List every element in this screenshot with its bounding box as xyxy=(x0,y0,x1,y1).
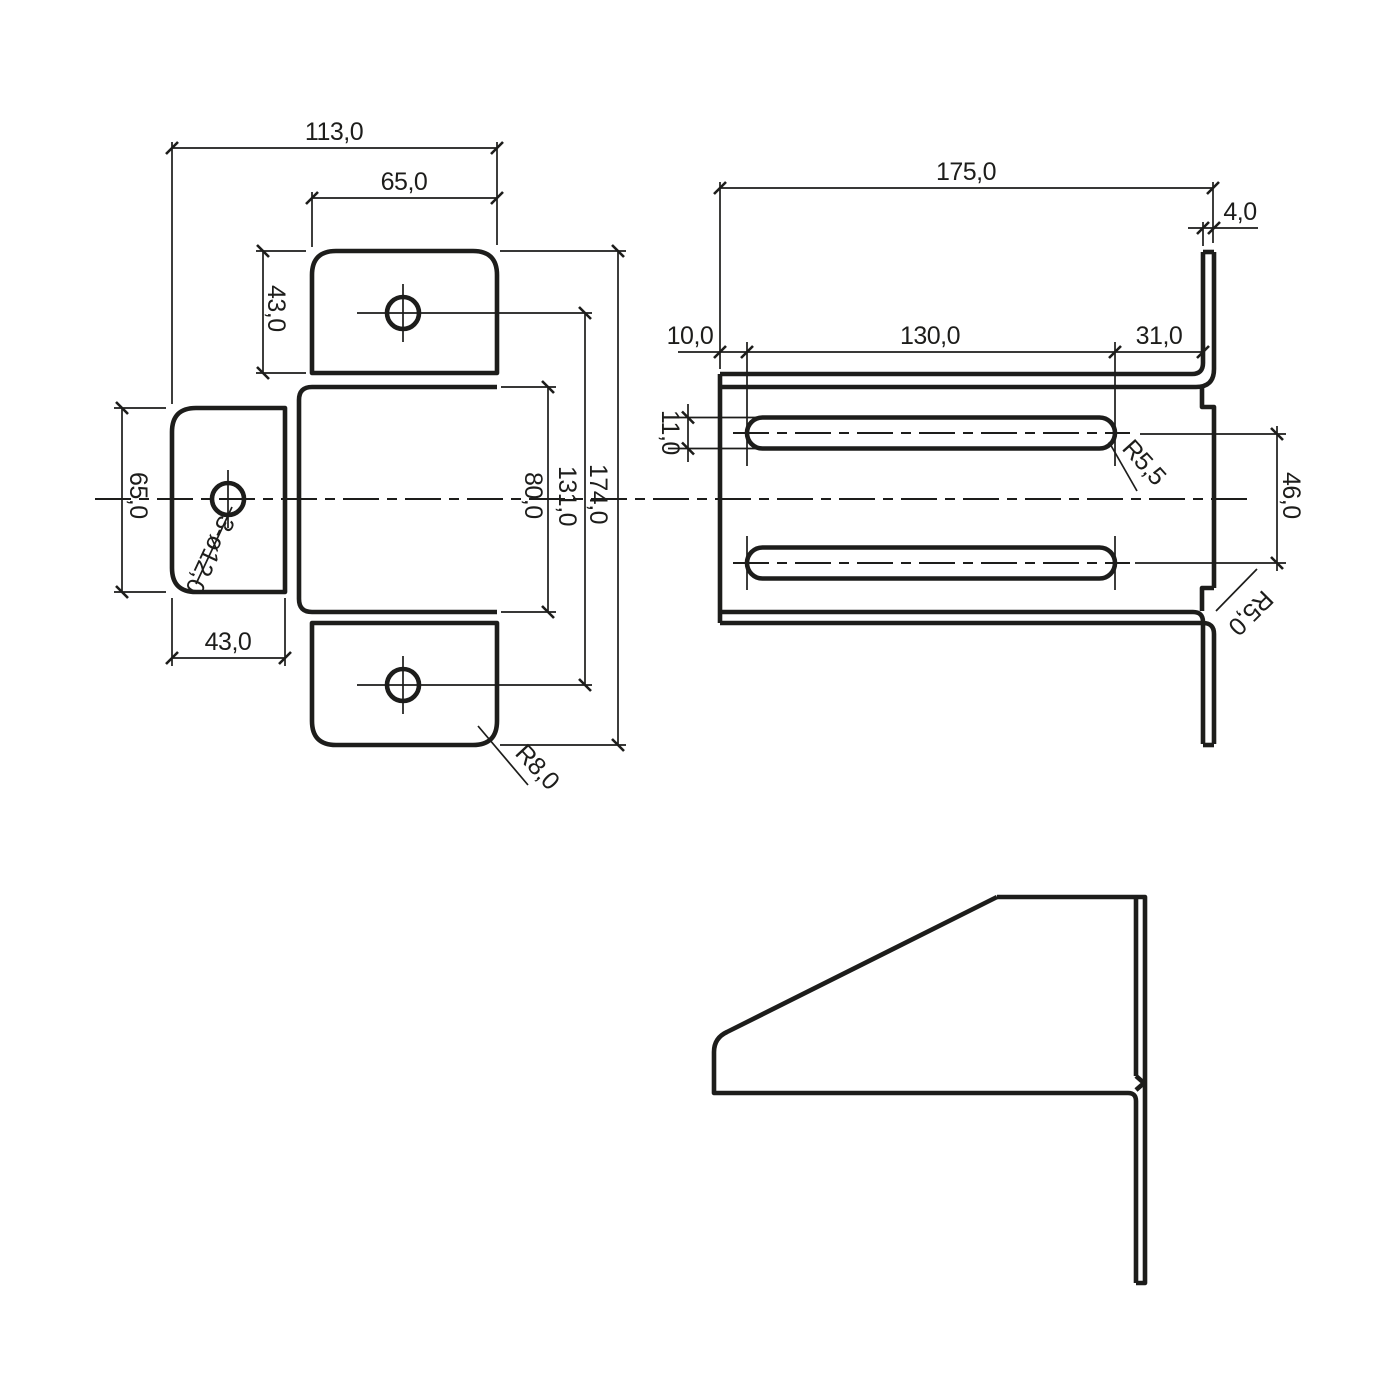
dim-left-tab-height-label: 65,0 xyxy=(124,472,152,519)
profile-view-outline xyxy=(714,897,1145,1283)
dim-overall-width-label: 113,0 xyxy=(305,118,363,146)
dim-slot-start-offset-label: 10,0 xyxy=(667,322,714,350)
dim-slot-end-offset-label: 31,0 xyxy=(1136,322,1183,350)
leader-corner-radius-label: R8,0 xyxy=(510,739,565,795)
drawing-canvas: 113,0 65,0 43,0 65,0 43,0 80,0 131,0 174… xyxy=(0,0,1400,1400)
profile-wedge xyxy=(714,897,1136,1283)
bend-relief-bottom xyxy=(1202,588,1214,611)
side-top-outer xyxy=(720,252,1203,374)
dim-body-height-label: 80,0 xyxy=(519,472,547,519)
tick-marks-horizontal-dims xyxy=(166,142,1220,664)
side-bottom-outer xyxy=(720,623,1214,744)
dim-65top-lines xyxy=(312,192,497,247)
bottom-hole-crosshair xyxy=(357,656,592,714)
dim-113-lines xyxy=(172,142,497,404)
side-top-inner xyxy=(720,252,1214,387)
side-view-dimensions: 175,0 4,0 10,0 130,0 31,0 11,0 46,0 R5,5… xyxy=(656,158,1305,640)
dim-slot-length-label: 130,0 xyxy=(900,322,960,350)
dim-hole-spacing-label: 131,0 xyxy=(553,466,581,526)
profile-flange-outer xyxy=(997,897,1145,1283)
top-hole-crosshair xyxy=(357,284,592,342)
front-view-dimensions: 113,0 65,0 43,0 65,0 43,0 80,0 131,0 174… xyxy=(114,118,626,795)
dim-left-tab-width-label: 43,0 xyxy=(205,628,252,656)
top-tab-outline xyxy=(312,251,497,373)
leader-bend-radius-label: R5,0 xyxy=(1223,585,1279,641)
bend-relief-top xyxy=(1202,387,1214,588)
slot-end-extension-lines xyxy=(747,342,1115,590)
drawing-sheet: 113,0 65,0 43,0 65,0 43,0 80,0 131,0 174… xyxy=(0,0,1400,1400)
dim-slot-width-label: 11,0 xyxy=(656,410,684,455)
dim-overall-height-label: 174,0 xyxy=(584,464,612,524)
dim-thickness-label: 4,0 xyxy=(1223,198,1256,226)
dim-top-tab-height-label: 43,0 xyxy=(262,285,290,332)
leader-holes-label: 3-ø12,0 xyxy=(180,511,240,598)
dim-overall-length-label: 175,0 xyxy=(936,158,996,186)
dim-slot-spacing-label: 46,0 xyxy=(1277,472,1305,519)
leader-slot-radius-label: R5,5 xyxy=(1117,434,1172,490)
side-bottom-inner xyxy=(720,612,1203,744)
bottom-tab-outline xyxy=(312,623,497,745)
dim-top-tab-width-label: 65,0 xyxy=(381,168,428,196)
